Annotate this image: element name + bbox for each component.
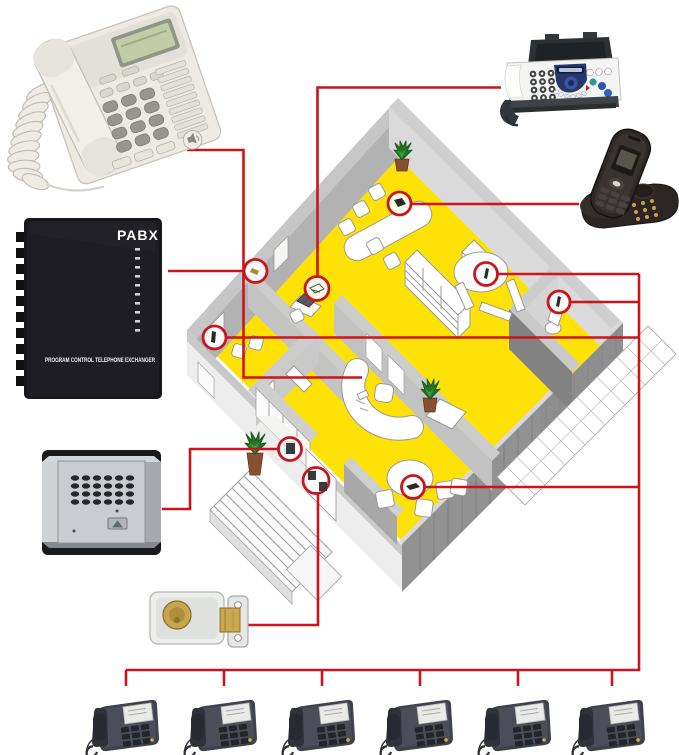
- svg-text:PROGRAM CONTROL TELEPHONE EXCH: PROGRAM CONTROL TELEPHONE EXCHANGER: [45, 357, 155, 364]
- svg-text:PABX: PABX: [117, 227, 159, 243]
